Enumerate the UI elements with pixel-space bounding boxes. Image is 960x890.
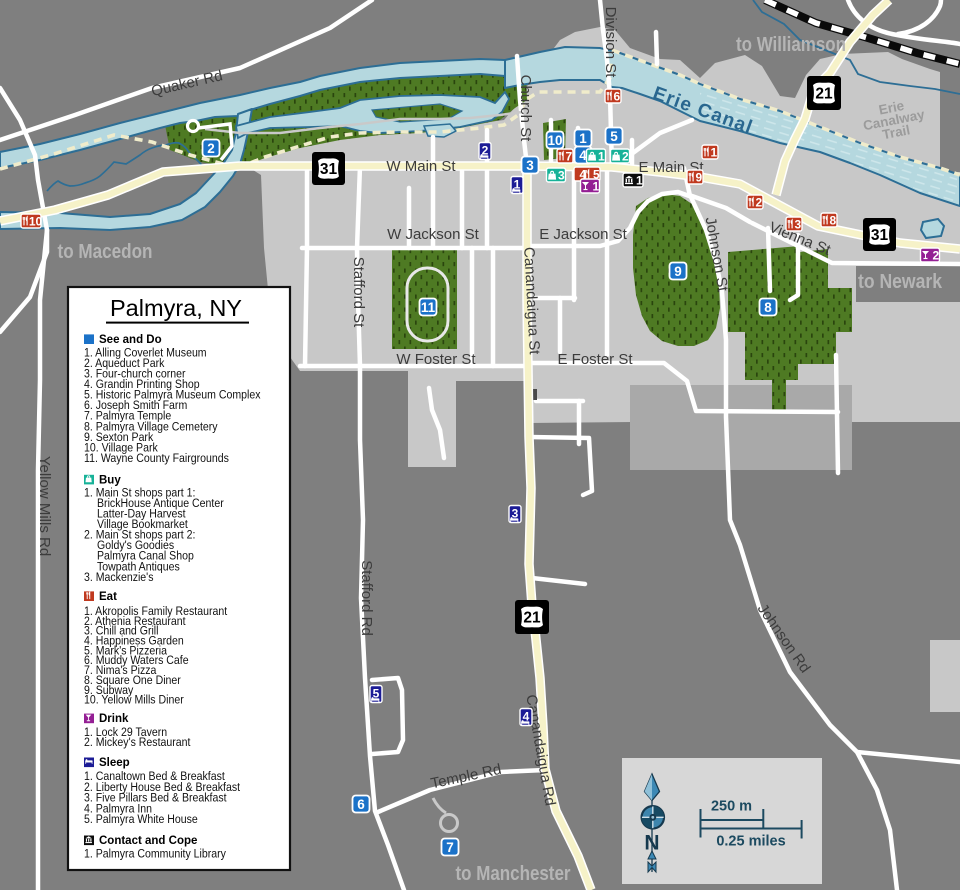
svg-text:31: 31 bbox=[871, 227, 889, 244]
svg-text:3: 3 bbox=[526, 158, 534, 173]
svg-text:to Newark: to Newark bbox=[858, 271, 943, 293]
svg-text:W Main St: W Main St bbox=[386, 158, 456, 175]
svg-text:8: 8 bbox=[830, 213, 837, 227]
svg-text:10: 10 bbox=[547, 133, 562, 148]
svg-text:2: 2 bbox=[933, 248, 940, 262]
svg-text:11. Wayne County Fairgrounds: 11. Wayne County Fairgrounds bbox=[84, 452, 229, 465]
svg-text:Division St: Division St bbox=[602, 7, 619, 79]
svg-text:10: 10 bbox=[29, 214, 43, 228]
svg-text:Stafford St: Stafford St bbox=[350, 257, 367, 328]
svg-text:31: 31 bbox=[320, 161, 338, 178]
svg-text:5: 5 bbox=[610, 129, 618, 144]
svg-text:9: 9 bbox=[674, 264, 682, 279]
svg-text:Sleep: Sleep bbox=[99, 757, 130, 769]
svg-text:1: 1 bbox=[636, 173, 643, 187]
svg-text:7: 7 bbox=[566, 149, 573, 163]
svg-text:21: 21 bbox=[815, 86, 833, 103]
svg-text:7: 7 bbox=[446, 840, 454, 855]
svg-text:9: 9 bbox=[696, 170, 703, 184]
svg-text:2: 2 bbox=[207, 141, 215, 156]
svg-text:See and Do: See and Do bbox=[99, 334, 162, 346]
svg-text:W Foster St: W Foster St bbox=[396, 351, 476, 368]
svg-text:Eat: Eat bbox=[99, 591, 117, 603]
svg-text:Yellow Mills Rd: Yellow Mills Rd bbox=[36, 456, 53, 556]
svg-text:W Jackson St: W Jackson St bbox=[387, 226, 480, 243]
svg-text:5. Palmyra White House: 5. Palmyra White House bbox=[84, 813, 198, 826]
svg-text:2: 2 bbox=[756, 195, 763, 209]
svg-text:1: 1 bbox=[593, 179, 600, 193]
svg-text:Contact and Cope: Contact and Cope bbox=[99, 835, 197, 847]
svg-text:2: 2 bbox=[622, 149, 629, 163]
svg-text:to Williamson: to Williamson bbox=[736, 34, 846, 56]
svg-text:3: 3 bbox=[795, 217, 802, 231]
svg-text:Palmyra, NY: Palmyra, NY bbox=[110, 295, 242, 321]
svg-text:2. Mickey's Restaurant: 2. Mickey's Restaurant bbox=[84, 736, 191, 749]
svg-text:8: 8 bbox=[764, 300, 772, 315]
svg-text:Stafford Rd: Stafford Rd bbox=[358, 560, 375, 636]
svg-text:to Macedon: to Macedon bbox=[58, 241, 153, 263]
svg-text:11: 11 bbox=[421, 300, 436, 315]
svg-text:3: 3 bbox=[558, 168, 565, 182]
svg-text:21: 21 bbox=[523, 610, 541, 627]
svg-text:10. Yellow Mills Diner: 10. Yellow Mills Diner bbox=[84, 694, 184, 707]
svg-text:Drink: Drink bbox=[99, 713, 129, 725]
svg-text:1. Palmyra Community Library: 1. Palmyra Community Library bbox=[84, 848, 226, 861]
svg-text:Buy: Buy bbox=[99, 474, 121, 486]
svg-text:250 m: 250 m bbox=[711, 799, 752, 815]
svg-text:E Jackson St: E Jackson St bbox=[539, 226, 627, 243]
svg-text:1: 1 bbox=[579, 131, 587, 146]
svg-text:Church St: Church St bbox=[517, 75, 534, 143]
svg-text:E Foster St: E Foster St bbox=[557, 351, 633, 368]
svg-text:1: 1 bbox=[598, 149, 605, 163]
svg-text:6: 6 bbox=[357, 797, 365, 812]
svg-text:to Manchester: to Manchester bbox=[456, 863, 571, 885]
svg-text:6: 6 bbox=[614, 89, 621, 103]
svg-text:0.25 miles: 0.25 miles bbox=[716, 834, 785, 850]
svg-text:3. Mackenzie's: 3. Mackenzie's bbox=[84, 571, 154, 584]
svg-text:1: 1 bbox=[711, 145, 718, 159]
